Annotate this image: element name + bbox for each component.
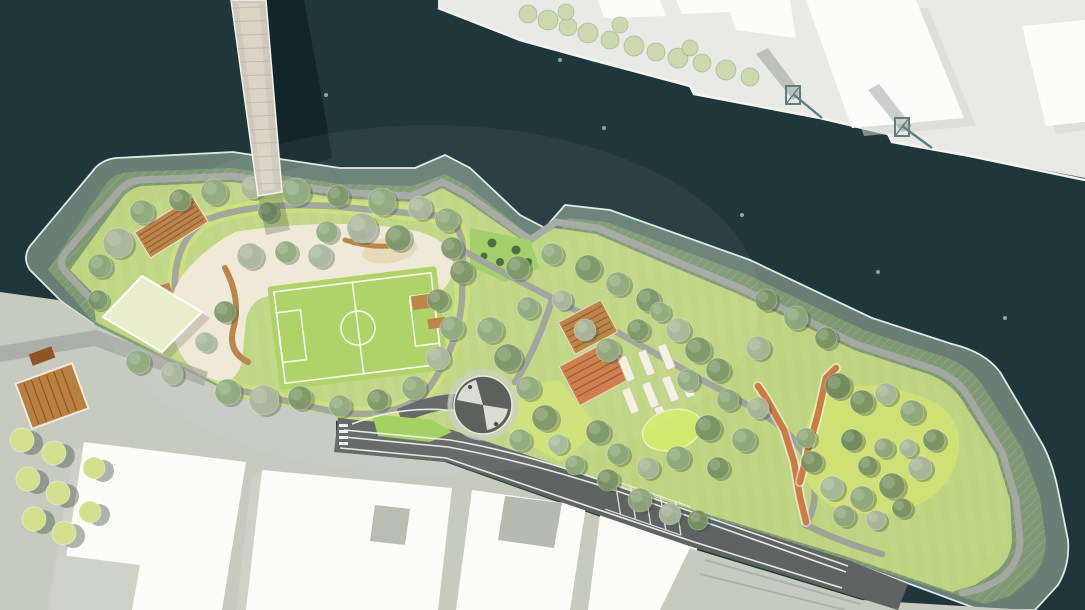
tree <box>46 481 70 505</box>
tree <box>624 36 644 56</box>
render-haze <box>100 125 760 475</box>
tree <box>79 501 101 523</box>
tree <box>716 60 736 80</box>
tree <box>601 31 619 49</box>
tree <box>741 68 759 86</box>
tree <box>519 5 537 23</box>
buoy-dot <box>1003 316 1007 320</box>
tree <box>647 43 665 61</box>
tree <box>612 17 628 33</box>
tree <box>538 10 558 30</box>
tree <box>578 23 598 43</box>
tree <box>558 4 574 20</box>
plan-canvas <box>0 0 1085 610</box>
buoy-dot <box>324 93 328 97</box>
tree <box>16 467 40 491</box>
tree <box>42 441 66 465</box>
buoy-dot <box>740 213 744 217</box>
tree <box>83 457 105 479</box>
buoy-dot <box>558 58 562 62</box>
tree <box>559 18 577 36</box>
tree <box>52 521 76 545</box>
tree <box>22 507 46 531</box>
building <box>598 0 666 18</box>
site-plan-rendering <box>0 0 1085 610</box>
tree <box>682 40 698 56</box>
buoy-dot <box>602 126 606 130</box>
tree <box>693 54 711 72</box>
buoy-dot <box>876 270 880 274</box>
tree <box>10 428 34 452</box>
